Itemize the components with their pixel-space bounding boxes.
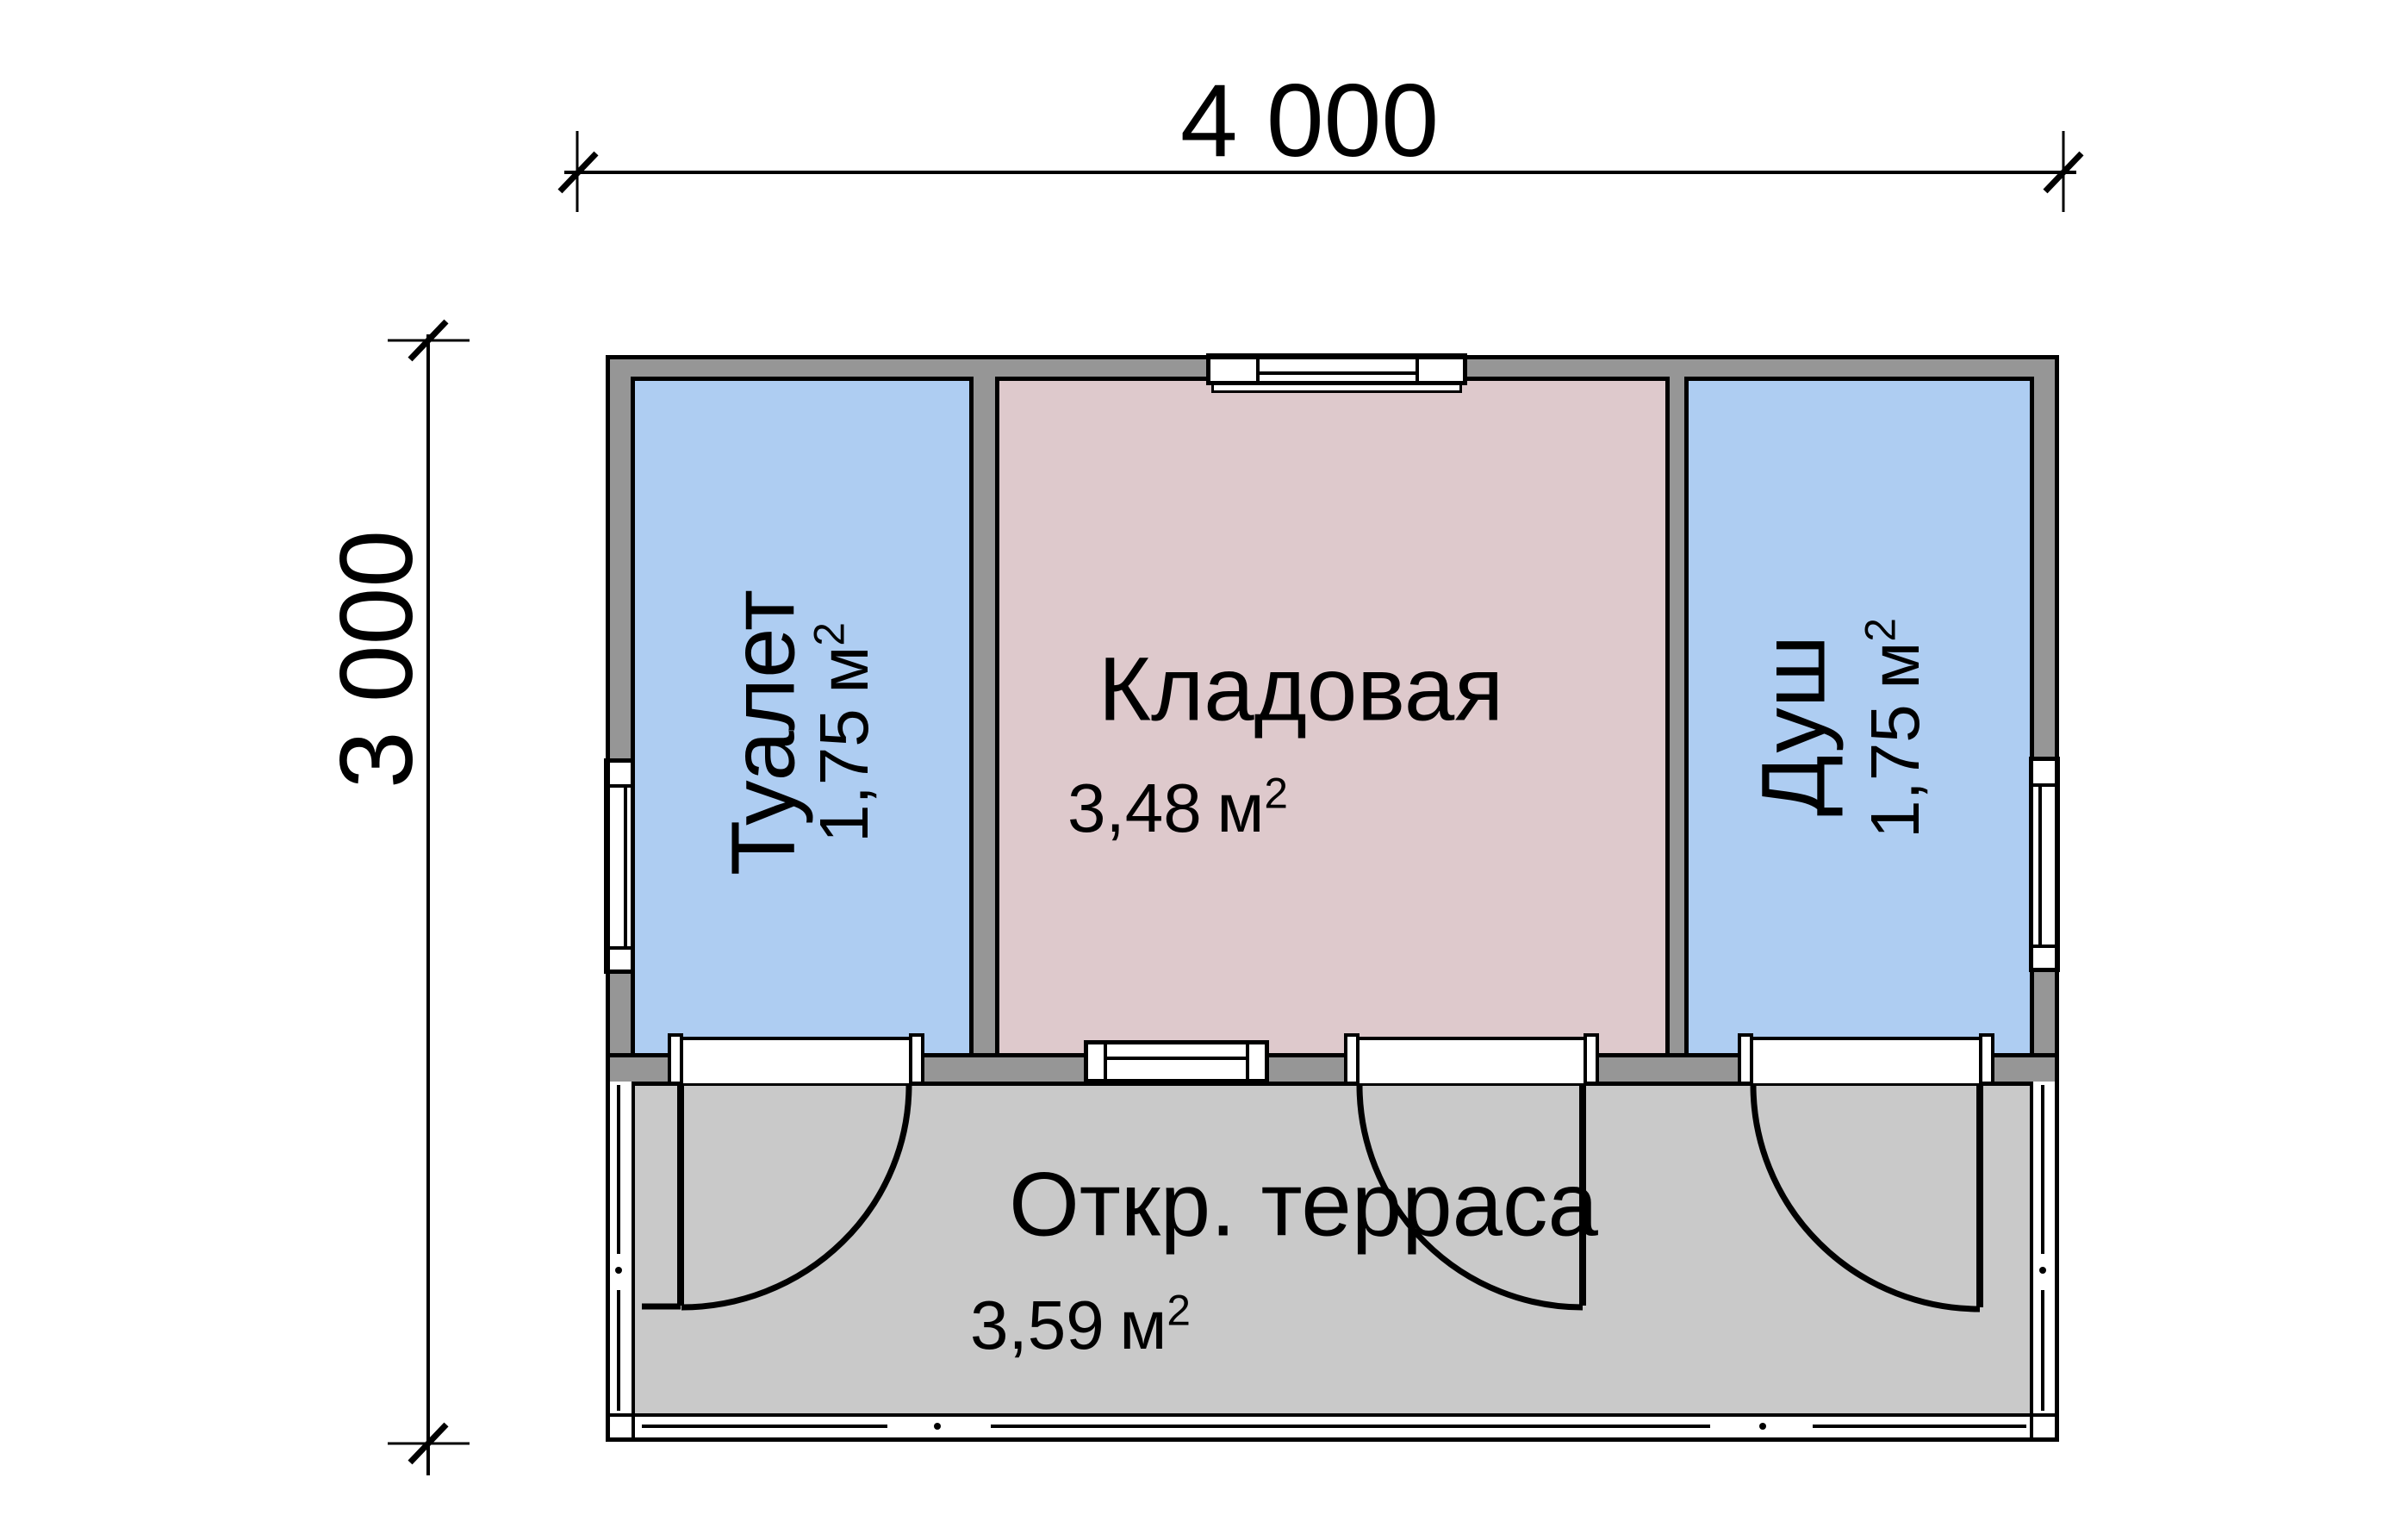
dimension-width-label: 4 000 — [1180, 69, 1439, 172]
room-toilet-area: 1,75м2 — [810, 622, 879, 843]
room-toilet-name: Туалет — [719, 589, 809, 876]
room-storage-area-value: 3,48 — [1067, 770, 1202, 846]
rail-right-glazing-2 — [2041, 1290, 2044, 1411]
window-storage-bottom-glazing-line — [1107, 1057, 1246, 1060]
window-right-mullion-bottom — [2032, 945, 2056, 948]
rail-bottom-glazing-1 — [642, 1425, 887, 1428]
room-shower-area: 1,75м2 — [1861, 618, 1930, 839]
dim-top-tick-right — [2045, 153, 2081, 191]
rail-bottom-dot-2 — [1759, 1423, 1766, 1430]
room-terrace-area-sup: 2 — [1167, 1286, 1191, 1334]
window-top-mullion-right — [1416, 357, 1419, 382]
room-storage-area: 3,48м2 — [1067, 774, 1288, 843]
rail-right-dot — [2039, 1267, 2046, 1274]
dim-left-tick-bottom — [410, 1425, 446, 1462]
terrace-floor — [606, 1082, 2059, 1442]
room-toilet-area-unit: м — [806, 646, 882, 694]
room-toilet-area-value: 1,75 — [806, 708, 882, 843]
door-shower-jamb-left — [1738, 1033, 1753, 1085]
window-top-mullion-left — [1256, 357, 1260, 382]
window-top-sill — [1211, 385, 1462, 393]
room-terrace-area-unit: м — [1119, 1287, 1167, 1363]
door-opening-storage — [1360, 1037, 1584, 1083]
room-storage-area-unit: м — [1216, 770, 1264, 846]
window-left — [604, 758, 635, 974]
terrace-rail-right — [2030, 1082, 2059, 1442]
room-storage-name: Кладовая — [1098, 645, 1503, 735]
dim-left-tick-top — [410, 321, 446, 359]
rail-bottom-glazing-2 — [991, 1425, 1710, 1428]
window-top — [1206, 353, 1467, 385]
window-left-mullion-bottom — [607, 946, 632, 950]
window-left-mullion-top — [607, 784, 632, 788]
window-storage-bottom — [1084, 1040, 1269, 1083]
rail-left-glazing-1 — [617, 1085, 620, 1254]
room-shower-area-value: 1,75 — [1857, 704, 1933, 839]
door-opening-shower — [1753, 1037, 1979, 1083]
door-shower-leaf — [1976, 1085, 1983, 1307]
room-shower-area-sup: 2 — [1856, 618, 1904, 642]
room-terrace-area-value: 3,59 — [970, 1287, 1104, 1363]
room-terrace-area: 3,59м2 — [970, 1291, 1191, 1360]
terrace-rail-left — [606, 1082, 635, 1442]
window-right-glazing-line — [2038, 787, 2042, 945]
rail-left-dot — [615, 1267, 622, 1274]
floor-plan-canvas: 4 000 3 000 Туалет 1,75м2 Кладовая 3,48м… — [0, 0, 2408, 1540]
window-left-glazing-line — [624, 788, 627, 946]
door-storage-jamb-left — [1344, 1033, 1360, 1085]
window-right — [2029, 757, 2060, 972]
dim-top-tick-left — [560, 153, 596, 191]
door-shower-jamb-right — [1979, 1033, 1994, 1085]
rail-left-glazing-2 — [617, 1290, 620, 1411]
rail-bottom-glazing-3 — [1813, 1425, 2026, 1428]
rail-bottom-dot-1 — [934, 1423, 941, 1430]
terrace-rail-corner-right — [2030, 1413, 2059, 1442]
room-shower-name: Душ — [1749, 635, 1839, 816]
room-storage-area-sup: 2 — [1264, 769, 1288, 817]
window-right-mullion-top — [2032, 783, 2056, 787]
dimension-height-label: 3 000 — [325, 530, 428, 789]
rail-right-glazing-1 — [2041, 1085, 2044, 1254]
room-toilet-area-sup: 2 — [805, 622, 853, 646]
door-opening-toilet — [683, 1037, 909, 1083]
window-storage-bottom-mullion-right — [1246, 1044, 1249, 1080]
window-top-glazing-line — [1260, 371, 1416, 375]
door-toilet-leaf — [677, 1085, 684, 1306]
door-toilet-jamb-left — [668, 1033, 683, 1085]
terrace-rail-corner-left — [606, 1413, 635, 1442]
window-storage-bottom-mullion-left — [1104, 1044, 1107, 1080]
room-terrace-name: Откр. терраса — [1009, 1160, 1598, 1250]
door-toilet-jamb-right — [909, 1033, 924, 1085]
room-shower-area-unit: м — [1857, 642, 1933, 689]
door-storage-jamb-right — [1584, 1033, 1599, 1085]
